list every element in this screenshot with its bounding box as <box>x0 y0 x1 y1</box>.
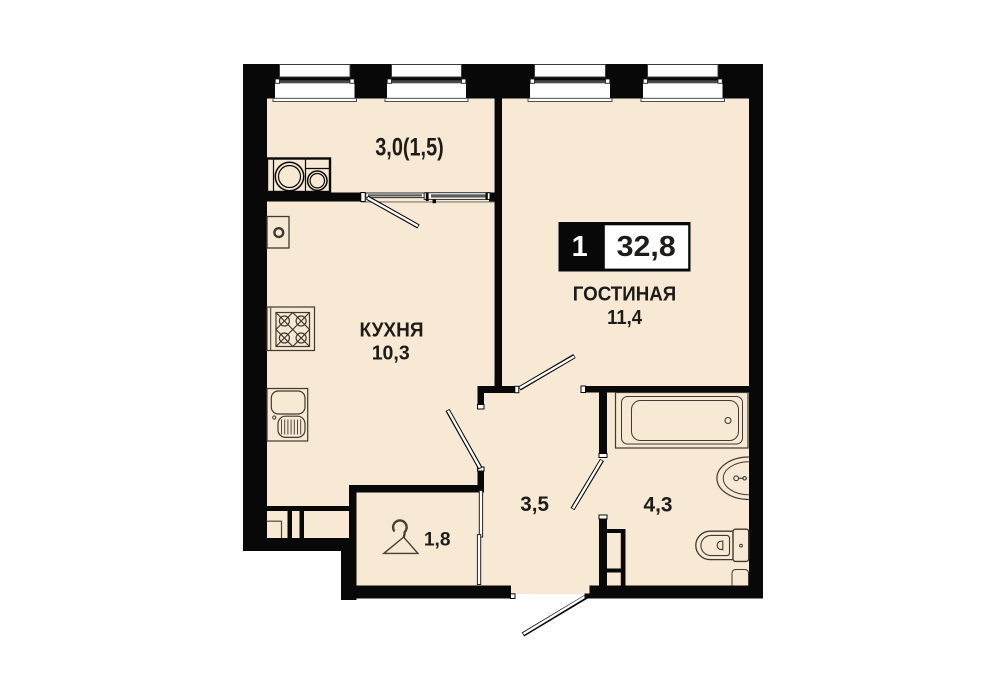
svg-text:КУХНЯ: КУХНЯ <box>360 319 424 342</box>
svg-text:4,3: 4,3 <box>644 492 673 516</box>
svg-text:32,8: 32,8 <box>617 231 676 263</box>
svg-text:1: 1 <box>572 231 588 263</box>
svg-text:1,8: 1,8 <box>424 528 451 550</box>
svg-text:ГОСТИНАЯ: ГОСТИНАЯ <box>573 282 677 305</box>
svg-text:10,3: 10,3 <box>372 342 410 365</box>
svg-text:11,4: 11,4 <box>607 306 643 329</box>
svg-text:3,5: 3,5 <box>520 492 549 516</box>
svg-text:3,0(1,5): 3,0(1,5) <box>375 134 444 162</box>
